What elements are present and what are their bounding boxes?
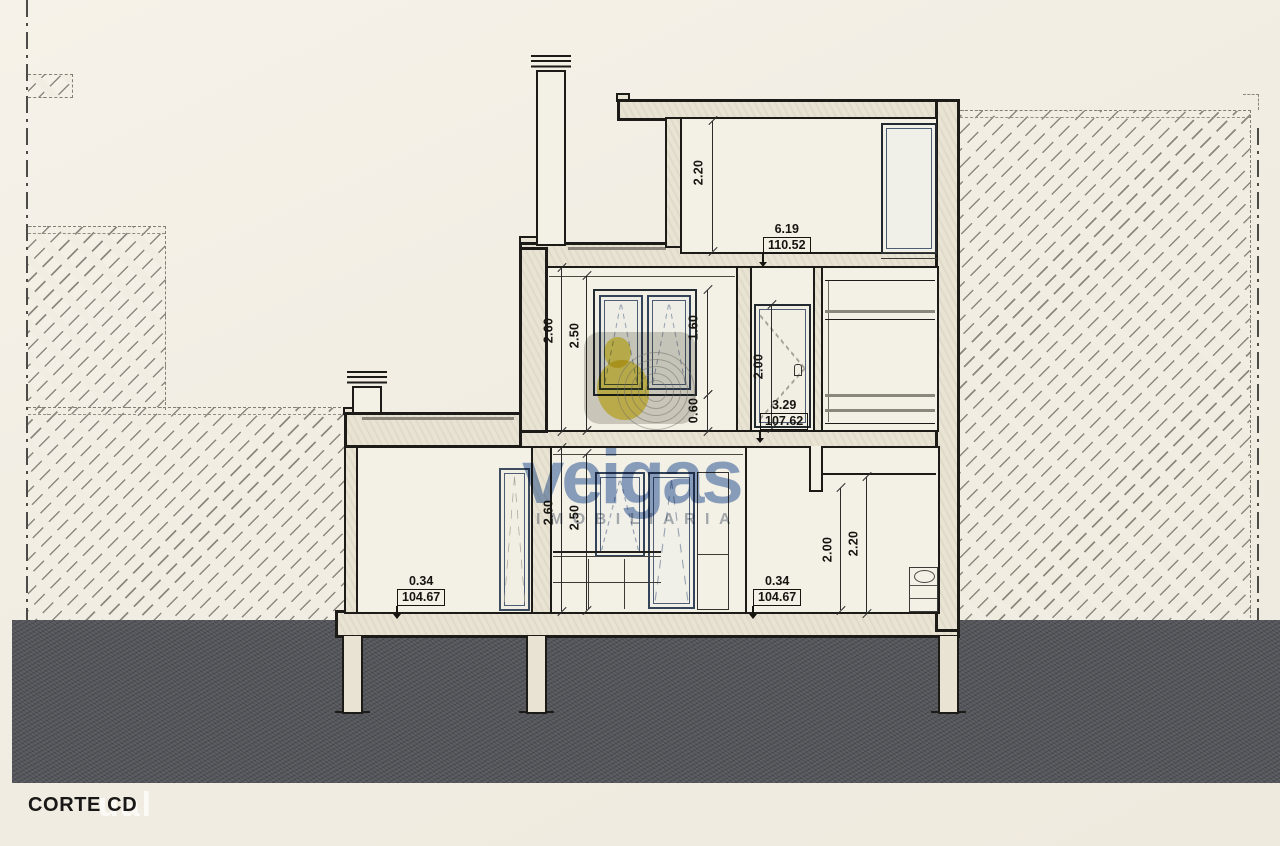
washbasin <box>909 567 938 612</box>
dim-label-top-220: 2.20 <box>692 151 707 195</box>
lot-boundary-right <box>1257 128 1259 622</box>
closet-line-1 <box>825 280 935 281</box>
counter-divider-v2 <box>624 559 625 609</box>
dim-label-mid-260: 2.60 <box>542 309 557 353</box>
fingerprint-icon <box>617 352 695 430</box>
closet-line-5 <box>825 409 935 412</box>
foundation-pier-middle <box>526 636 547 714</box>
level-marker-gf-right: 0.34 104.67 <box>753 574 801 606</box>
level-marker-mid: 3.29 107.62 <box>760 398 808 430</box>
terrain-left-lower <box>28 407 346 631</box>
dim-line-win-160 <box>707 290 708 394</box>
unit-shelf-line <box>698 554 728 555</box>
top-floor-window-sill <box>881 252 937 259</box>
level-height: 0.34 <box>753 574 801 590</box>
lot-corner-mark-right <box>1243 94 1259 110</box>
closet-line-2 <box>825 310 935 313</box>
level-height: 3.29 <box>760 398 808 414</box>
dim-line-mid-260 <box>561 268 562 431</box>
foundation-pier-right <box>938 636 959 714</box>
level-altitude: 107.62 <box>760 414 808 430</box>
closet-line-4 <box>825 394 935 397</box>
level-height: 0.34 <box>397 574 445 590</box>
ground-section-fill <box>12 620 1280 783</box>
terrain-right <box>960 110 1251 623</box>
chimney-top <box>536 70 566 246</box>
closet-inner-face <box>828 280 829 422</box>
level-marker-roof: 6.19 110.52 <box>763 222 811 254</box>
level-arrow-icon <box>752 606 754 615</box>
terrace-low-finish-line <box>362 417 514 420</box>
terrain-left-upper <box>28 226 166 415</box>
dim-label-gfright-200: 2.00 <box>821 528 836 572</box>
drawing-title: CORTE CD <box>28 794 137 817</box>
kitchen-counter <box>553 551 661 611</box>
counter-divider-h <box>553 582 661 583</box>
drawing-sheet: 2.20 2.60 2.50 1.60 0.60 2.00 2.60 2.50 … <box>0 0 1280 846</box>
partition-hanging <box>809 446 823 492</box>
neighbor-roof-edge <box>28 74 73 98</box>
level-marker-gf-left: 0.34 104.67 <box>397 574 445 606</box>
basin-bowl <box>914 570 935 583</box>
level-arrow-icon <box>762 254 764 263</box>
room-closet <box>821 266 939 432</box>
dim-line-gfright-220 <box>866 477 867 613</box>
veigas-watermark-text: veigas <box>522 434 741 521</box>
chimney-low <box>352 386 382 414</box>
dim-line-sill-060 <box>707 395 708 431</box>
closet-line-6 <box>825 423 935 424</box>
dim-line-gfright-200 <box>840 488 841 610</box>
closet-line-3 <box>825 319 935 320</box>
bedroom-ceiling-line <box>549 276 735 277</box>
veigas-watermark-subtitle: IMOBILIARIA <box>536 511 740 529</box>
dim-label-door-200: 2.00 <box>752 345 767 389</box>
level-altitude: 104.67 <box>397 590 445 606</box>
foundation-pier-left <box>342 636 363 714</box>
chimney-top-cap <box>531 55 571 70</box>
level-height: 6.19 <box>763 222 811 238</box>
basin-line-2 <box>910 598 937 599</box>
terrace-mid-finish-line <box>568 247 666 250</box>
dim-label-gfright-220: 2.20 <box>847 522 862 566</box>
level-arrow-icon <box>396 606 398 615</box>
dim-line-top-220 <box>712 121 713 251</box>
dim-label-mid-250: 2.50 <box>568 314 583 358</box>
basin-line-1 <box>910 585 937 586</box>
door-handle <box>794 364 802 376</box>
counter-divider-v1 <box>588 559 589 609</box>
level-altitude: 104.67 <box>753 590 801 606</box>
top-floor-window <box>881 123 937 254</box>
level-altitude: 110.52 <box>763 238 811 254</box>
top-floor-window-frame <box>886 128 932 249</box>
level-arrow-icon <box>759 430 761 439</box>
gf-right-ceiling-line <box>823 473 936 475</box>
chimney-low-cap <box>347 371 387 386</box>
